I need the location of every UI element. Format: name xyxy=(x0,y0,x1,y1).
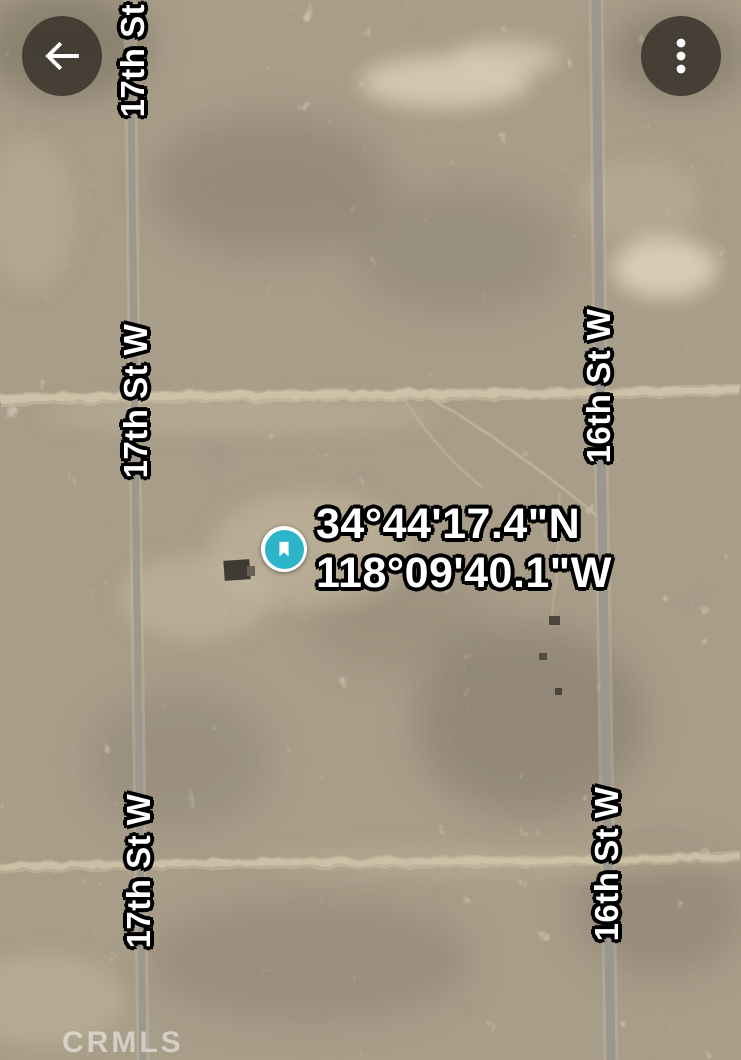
road-label-16th-st-w-middle: 16th St W xyxy=(580,309,618,464)
marker-circle xyxy=(265,530,304,569)
coordinates-latitude: 34°44'17.4"N xyxy=(316,500,612,549)
back-button[interactable] xyxy=(22,16,102,96)
road-label-17th-st-w-bottom: 17th St W xyxy=(120,794,158,949)
road-label-17th-st-w-middle: 17th St W xyxy=(117,324,155,479)
more-vert-icon xyxy=(675,38,687,74)
coordinates-label: 34°44'17.4"N 118°09'40.1"W xyxy=(316,500,612,598)
arrow-left-icon xyxy=(41,35,83,77)
bookmark-icon xyxy=(274,539,294,559)
road-label-16th-st-w-bottom: 16th St W xyxy=(588,787,626,942)
saved-place-marker[interactable] xyxy=(261,526,307,572)
more-options-button[interactable] xyxy=(641,16,721,96)
road-label-17th-st-w-top: 17th St W xyxy=(114,0,152,117)
crmls-watermark: CRMLS xyxy=(62,1026,184,1060)
coordinates-longitude: 118°09'40.1"W xyxy=(316,549,612,598)
map-view: 17th St W 17th St W 17th St W 16th St W … xyxy=(0,0,741,1060)
